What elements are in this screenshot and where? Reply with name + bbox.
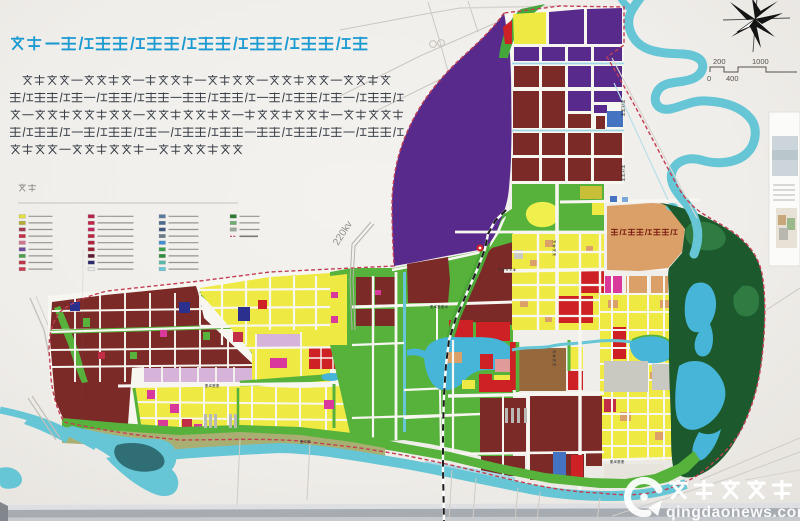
svg-text:400: 400 [726, 74, 739, 83]
svg-text:1000: 1000 [752, 57, 769, 66]
svg-text:qingdaonews.com: qingdaonews.com [666, 504, 800, 521]
svg-text:0: 0 [707, 74, 711, 83]
svg-text:200: 200 [713, 57, 726, 66]
